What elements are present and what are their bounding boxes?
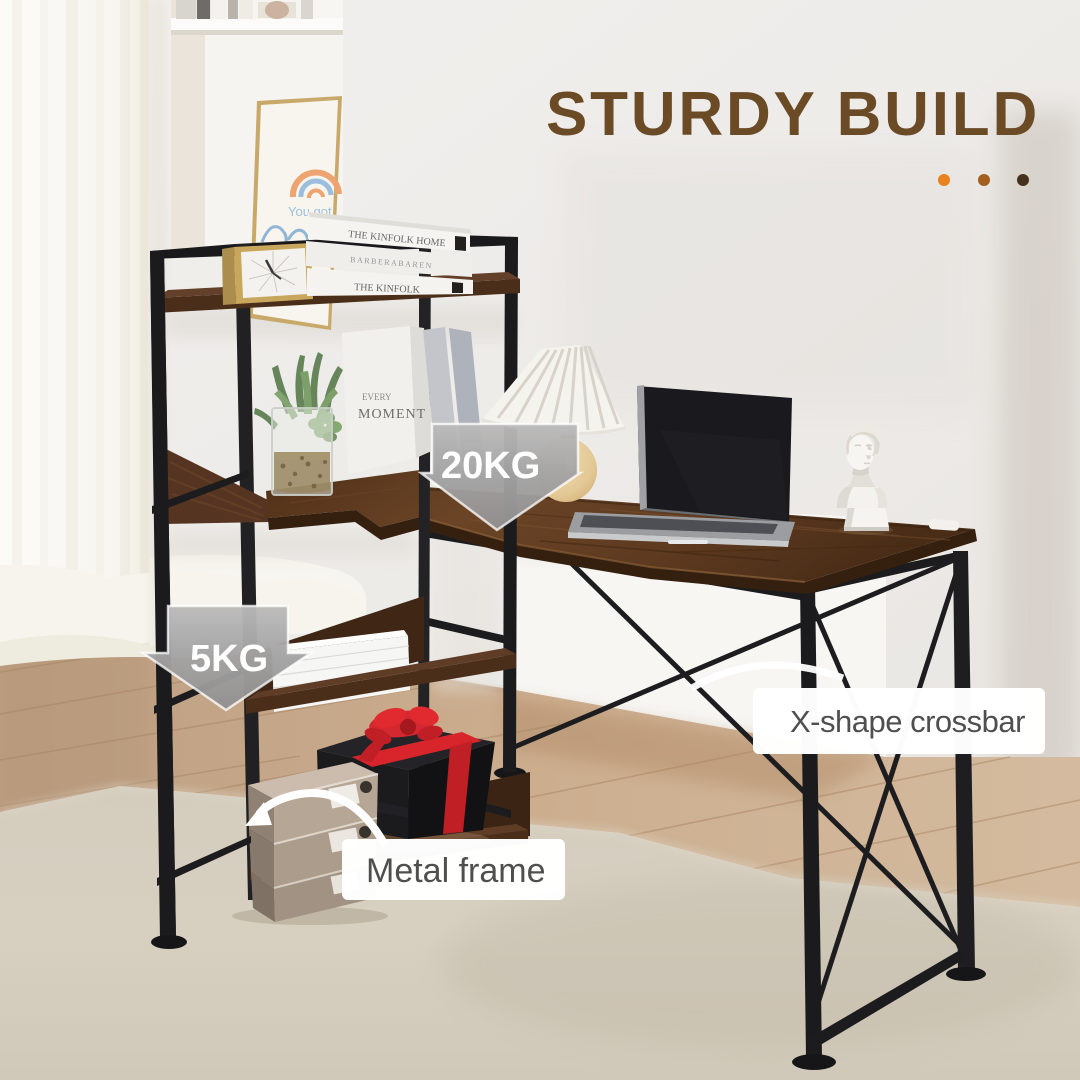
svg-text:5KG: 5KG (190, 638, 268, 680)
svg-text:X-shape crossbar: X-shape crossbar (790, 704, 1025, 739)
svg-text:Metal frame: Metal frame (366, 852, 546, 890)
svg-text:MOMENT: MOMENT (358, 407, 426, 422)
svg-text:STURDY BUILD: STURDY BUILD (546, 80, 1040, 149)
svg-text:EVERY: EVERY (362, 392, 392, 402)
svg-text:20KG: 20KG (441, 445, 540, 487)
